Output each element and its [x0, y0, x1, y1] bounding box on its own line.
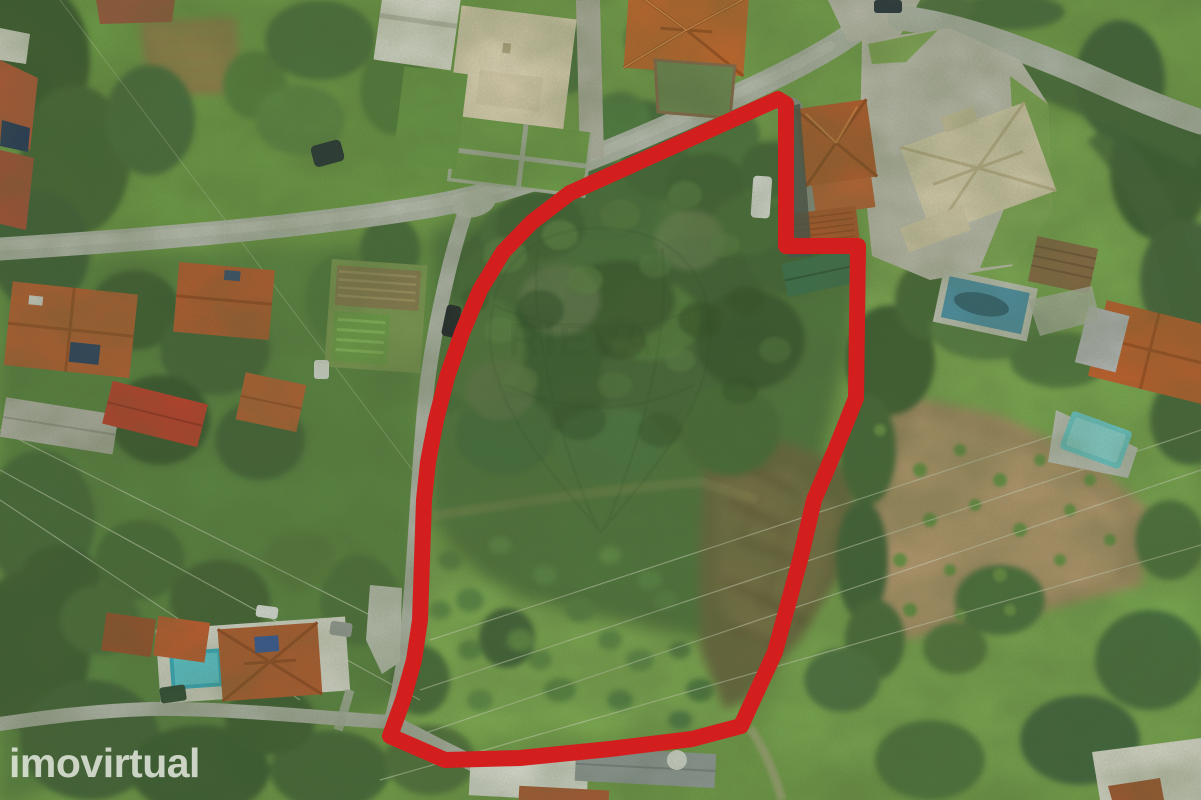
svg-text:imovirtual: imovirtual — [9, 740, 200, 786]
